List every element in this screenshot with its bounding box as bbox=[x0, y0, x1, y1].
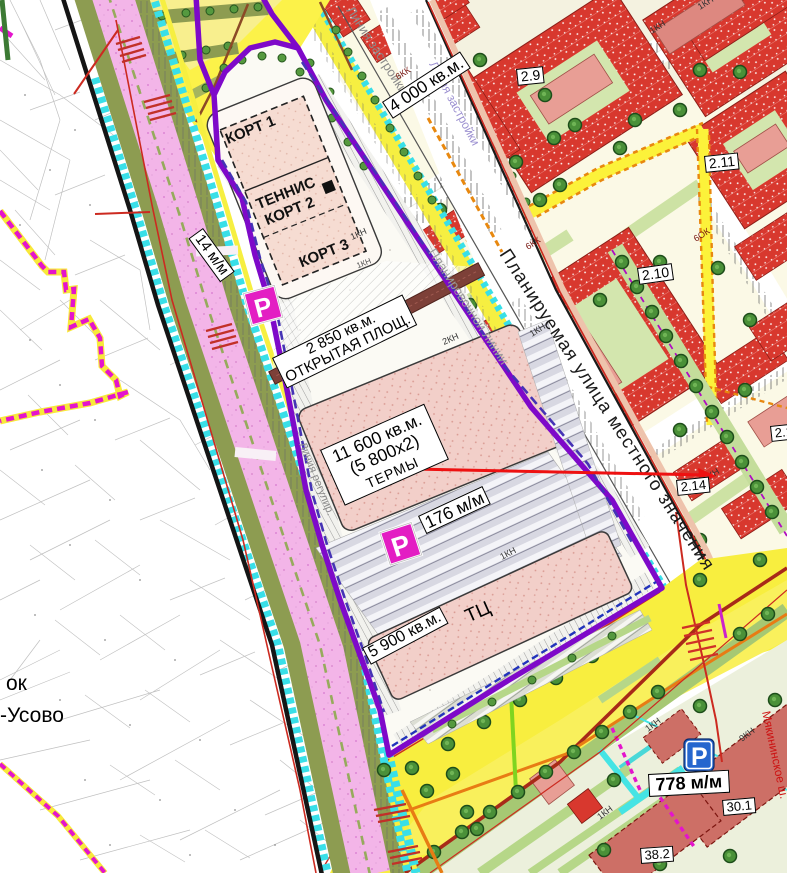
svg-text:P: P bbox=[691, 743, 708, 771]
